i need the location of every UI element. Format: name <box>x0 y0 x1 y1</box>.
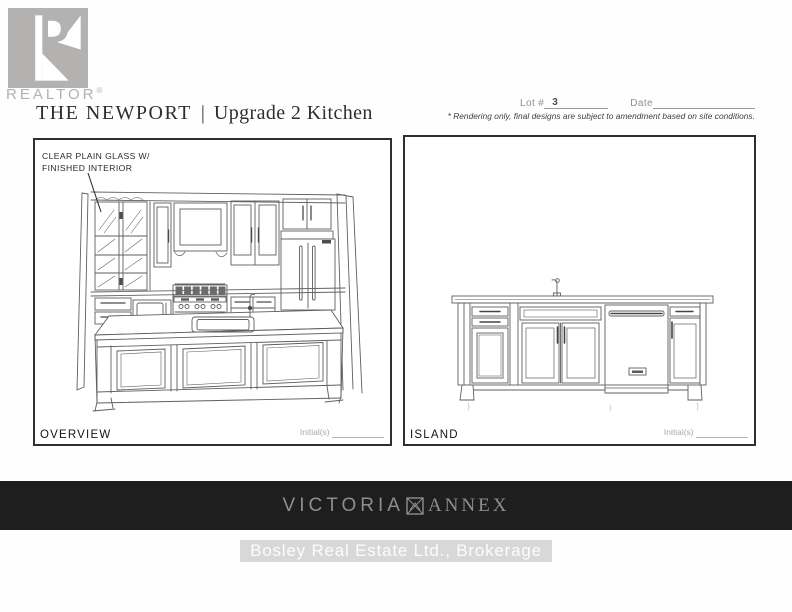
lot-value-field: 3 <box>544 97 608 109</box>
title-variant: Upgrade 2 Kitchen <box>214 102 373 124</box>
realtor-block-r-icon <box>8 8 88 88</box>
title-separator: | <box>201 102 205 124</box>
realtor-wordmark: REALTOR® <box>6 86 102 103</box>
lot-label: Lot # <box>520 98 544 109</box>
kitchen-overview-drawing <box>35 140 390 444</box>
disclaimer-text: * Rendering only, final designs are subj… <box>448 111 755 121</box>
initials-line <box>332 427 384 438</box>
lot-date-row: Lot # 3 Date <box>520 97 755 109</box>
island-initials-field: Initial(s) <box>664 427 748 438</box>
annex-crest-icon <box>406 497 424 515</box>
island-caption: ISLAND <box>410 429 459 441</box>
annotation-line-1: CLEAR PLAIN GLASS W/ <box>42 151 150 163</box>
brokerage-text: Bosley Real Estate Ltd., Brokerage <box>240 540 552 562</box>
overview-caption: OVERVIEW <box>40 429 111 441</box>
overview-initials-field: Initial(s) <box>300 427 384 438</box>
victoria-wordmark: VICTORIA <box>283 495 404 517</box>
realtor-logo: REALTOR® <box>8 8 100 88</box>
development-banner: VICTORIA ANNEX <box>0 481 792 530</box>
island-elevation-drawing <box>405 137 754 444</box>
title-project: THE NEWPORT <box>36 102 192 124</box>
brokerage-row: Bosley Real Estate Ltd., Brokerage <box>0 540 792 562</box>
annex-wordmark: ANNEX <box>428 495 510 517</box>
date-value-field <box>653 97 755 109</box>
overview-panel: CLEAR PLAIN GLASS W/ FINISHED INTERIOR O… <box>33 138 392 446</box>
annotation-label: CLEAR PLAIN GLASS W/ FINISHED INTERIOR <box>42 151 150 174</box>
page-title: THE NEWPORT|Upgrade 2 Kitchen <box>36 102 373 125</box>
island-panel: ISLAND Initial(s) <box>403 135 756 446</box>
registered-mark: ® <box>96 86 102 95</box>
date-label: Date <box>630 98 653 109</box>
document-page: REALTOR® THE NEWPORT|Upgrade 2 Kitchen L… <box>0 0 792 612</box>
annotation-line-2: FINISHED INTERIOR <box>42 163 150 175</box>
initials-line <box>696 427 748 438</box>
